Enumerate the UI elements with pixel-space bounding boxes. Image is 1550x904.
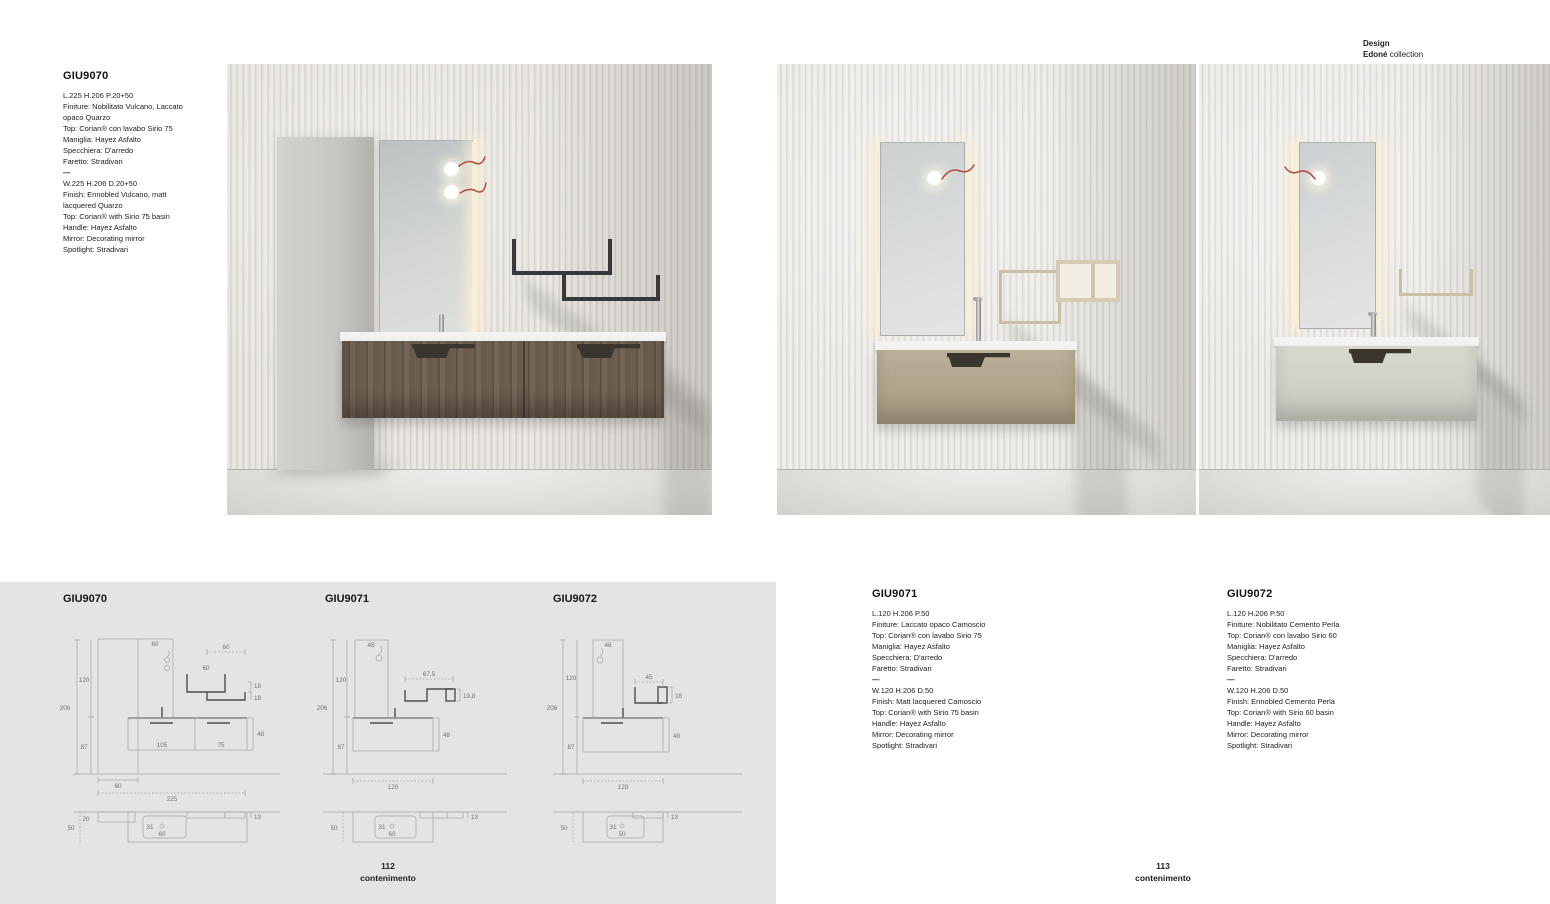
catalog-page: GIU9070 L.225 H.206 P.20+50 Finiture: No… <box>0 0 1550 904</box>
dim-label: 48 <box>673 733 681 740</box>
spec-line: Top: Corian® with Sirio 75 basin <box>872 707 1024 718</box>
dim-label: 31 <box>378 824 386 831</box>
dim-label: 87 <box>80 744 88 751</box>
spotlight-glyph <box>597 657 603 663</box>
product-photo-giu9070 <box>227 64 712 515</box>
page-footer-right: 113 contenimento <box>1088 860 1238 884</box>
dim-label: 19,8 <box>463 693 476 700</box>
spec-line: Faretto: Stradivari <box>63 156 199 167</box>
spec-line: Handle: Hayez Asfalto <box>872 718 1024 729</box>
dim-label: 120 <box>566 675 577 682</box>
dim-label: 13 <box>254 814 262 821</box>
spec-line: Top: Corian® with Sirio 60 basin <box>1227 707 1379 718</box>
design-credit: Design Edoné collection <box>1363 38 1423 60</box>
dim-label: 120 <box>336 677 347 684</box>
language-separator: — <box>63 167 199 178</box>
spec-line: Specchiera: D'arredo <box>1227 652 1379 663</box>
dim-label: 60 <box>202 665 210 672</box>
spec-line: W.225 H.206 D.20+50 <box>63 178 199 189</box>
spec-line: W.120 H.206 D.50 <box>872 685 1024 696</box>
drawing-title: GIU9070 <box>63 593 107 605</box>
dim-label: 60 <box>151 641 159 648</box>
spec-line: Spotlight: Stradivari <box>63 244 199 255</box>
product-code: GIU9072 <box>1227 588 1379 600</box>
vanity-unit <box>342 341 664 418</box>
dim-label: 31 <box>146 824 154 831</box>
plan-view: 50 31 50 13 <box>553 812 742 842</box>
spec-line: Faretto: Stradivari <box>1227 663 1379 674</box>
spec-line: Finish: Matt lacquered Camoscio <box>872 696 1024 707</box>
plan-view: 20 50 31 60 13 <box>67 812 280 842</box>
product-code: GIU9071 <box>872 588 1024 600</box>
collection-suffix: collection <box>1390 50 1423 59</box>
diameter-symbol <box>390 824 394 828</box>
section-label: contenimento <box>1088 872 1238 884</box>
dim-label: 50 <box>67 825 75 832</box>
dim-label: 206 <box>317 705 328 712</box>
diameter-symbol <box>160 824 164 828</box>
dim-label: 60 <box>388 831 396 838</box>
spec-line: Spotlight: Stradivari <box>872 740 1024 751</box>
page-number: 113 <box>1088 860 1238 872</box>
drawer-handle <box>1349 349 1411 363</box>
spec-line: Finish: Ennobled Cemento Perla <box>1227 696 1379 707</box>
dim-label: 18 <box>254 683 262 690</box>
spec-line: Top: Corian® con lavabo Sirio 75 <box>872 630 1024 641</box>
spec-line: Maniglia: Hayez Asfalto <box>63 134 199 145</box>
page-footer-left: 112 contenimento <box>313 860 463 884</box>
dim-label: 48 <box>367 642 375 649</box>
drawer-seam <box>523 341 525 418</box>
dim-label: 120 <box>618 784 629 791</box>
spec-line: Specchiera: D'arredo <box>872 652 1024 663</box>
spec-line: Faretto: Stradivari <box>872 663 1024 674</box>
elevation-view: 206 120 87 48 48 45 18 <box>547 640 742 791</box>
spotlight-glyph <box>164 657 169 662</box>
dim-label: 18 <box>254 695 262 702</box>
spotlight-cord <box>455 150 487 200</box>
diameter-symbol <box>620 824 624 828</box>
dim-label: 50 <box>618 831 626 838</box>
dim-label: 87 <box>337 744 345 751</box>
elevation-view: 206 120 87 48 48 67,5 19,8 <box>317 640 507 791</box>
spec-line: L.225 H.206 P.20+50 <box>63 90 199 101</box>
dim-label: 206 <box>60 705 71 712</box>
faucet <box>976 298 981 342</box>
drawer-handle <box>947 353 1010 367</box>
spotlight-cord <box>940 161 976 183</box>
dim-label: 87 <box>567 744 575 751</box>
section-label: contenimento <box>313 872 463 884</box>
vanity-unit <box>877 350 1075 424</box>
language-separator: — <box>1227 674 1379 685</box>
dim-label: 13 <box>471 814 479 821</box>
spec-line: Spotlight: Stradivari <box>1227 740 1379 751</box>
spec-line: W.120 H.206 D.50 <box>1227 685 1379 696</box>
page-number: 112 <box>313 860 463 872</box>
product-info-giu9071: GIU9071 L.120 H.206 P.50 Finiture: Lacca… <box>872 588 1024 751</box>
dim-label: 48 <box>257 731 265 738</box>
drawing-giu9070: 206 120 87 60 105 75 48 60 60 <box>55 630 290 860</box>
wall-shelf-metal <box>510 237 662 305</box>
spotlight-cord <box>1283 163 1317 183</box>
dim-label: 60 <box>222 644 230 651</box>
plan-view: 50 31 60 13 <box>323 812 507 842</box>
product-info-giu9070: GIU9070 L.225 H.206 P.20+50 Finiture: No… <box>63 70 199 255</box>
spec-line: Finiture: Nobilitato Vulcano, Laccato op… <box>63 101 199 123</box>
vanity-unit <box>1276 346 1477 421</box>
dim-label: 75 <box>217 742 225 749</box>
dim-label: 225 <box>167 796 178 803</box>
spec-line: Mirror: Decorating mirror <box>63 233 199 244</box>
dim-label: 120 <box>388 784 399 791</box>
collection-label: Edoné collection <box>1363 49 1423 60</box>
product-info-giu9072: GIU9072 L.120 H.206 P.50 Finiture: Nobil… <box>1227 588 1379 751</box>
product-photo-giu9071 <box>777 64 1196 515</box>
dim-label: 50 <box>560 825 568 832</box>
dim-label: 60 <box>114 783 122 790</box>
technical-drawings-panel: GIU9070 GIU9071 GIU9072 206 120 87 60 10… <box>0 582 776 904</box>
spec-line: Finish: Ennobled Vulcano, matt lacquered… <box>63 189 199 211</box>
spec-line: Top: Corian® con lavabo Sirio 75 <box>63 123 199 134</box>
dim-label: 31 <box>609 824 617 831</box>
shelf-divider <box>1091 264 1095 298</box>
dim-label: 20 <box>82 816 90 823</box>
spec-line: L.120 H.206 P.50 <box>872 608 1024 619</box>
dim-label: 120 <box>79 677 90 684</box>
drawing-giu9072: 206 120 87 48 48 45 18 <box>545 630 750 860</box>
product-photo-giu9072 <box>1199 64 1550 515</box>
shelf-glyph <box>635 687 663 703</box>
faucet <box>1371 313 1376 337</box>
wall-shelf-box <box>1056 260 1120 302</box>
spec-line: Top: Corian® con lavabo Sirio 60 <box>1227 630 1379 641</box>
wall-shelf-open-frame <box>999 270 1061 324</box>
wall-shelf <box>1399 269 1473 296</box>
dim-label: 105 <box>157 742 168 749</box>
spec-line: Maniglia: Hayez Asfalto <box>872 641 1024 652</box>
spotlight-glyph <box>376 655 382 661</box>
spec-line: Mirror: Decorating mirror <box>872 729 1024 740</box>
dim-label: 67,5 <box>423 671 436 678</box>
collection-name: Edoné <box>1363 50 1387 59</box>
drawing-giu9071: 206 120 87 48 48 67,5 19,8 <box>315 630 515 860</box>
spec-line: Top: Corian® with Sirio 75 basin <box>63 211 199 222</box>
language-separator: — <box>872 674 1024 685</box>
dim-label: 60 <box>158 831 166 838</box>
dim-label: 18 <box>675 693 683 700</box>
dim-label: 13 <box>671 814 679 821</box>
spec-line: Handle: Hayez Asfalto <box>63 222 199 233</box>
dim-label: 45 <box>645 674 653 681</box>
shelf-glyph <box>187 674 225 692</box>
drawing-title: GIU9072 <box>553 593 597 605</box>
drawer-handle <box>577 344 640 358</box>
spec-line: L.120 H.206 P.50 <box>1227 608 1379 619</box>
spec-line: Mirror: Decorating mirror <box>1227 729 1379 740</box>
spec-line: Maniglia: Hayez Asfalto <box>1227 641 1379 652</box>
spec-line: Finiture: Laccato opaco Camoscio <box>872 619 1024 630</box>
tall-cabinet <box>277 137 374 470</box>
shelf-interior <box>1060 264 1116 298</box>
drawing-title: GIU9071 <box>325 593 369 605</box>
dim-label: 48 <box>443 732 451 739</box>
dim-label: 50 <box>330 825 338 832</box>
floor <box>777 469 1196 515</box>
design-label: Design <box>1363 38 1423 49</box>
faucet <box>439 314 444 333</box>
elevation-view: 206 120 87 60 105 75 48 60 60 <box>60 639 280 803</box>
drawer-handle <box>412 344 475 358</box>
spec-line: Handle: Hayez Asfalto <box>1227 718 1379 729</box>
dim-label: 206 <box>547 705 558 712</box>
dim-label: 48 <box>604 642 612 649</box>
product-code: GIU9070 <box>63 70 199 82</box>
spec-line: Finiture: Nobilitato Cemento Perla <box>1227 619 1379 630</box>
spec-line: Specchiera: D'arredo <box>63 145 199 156</box>
